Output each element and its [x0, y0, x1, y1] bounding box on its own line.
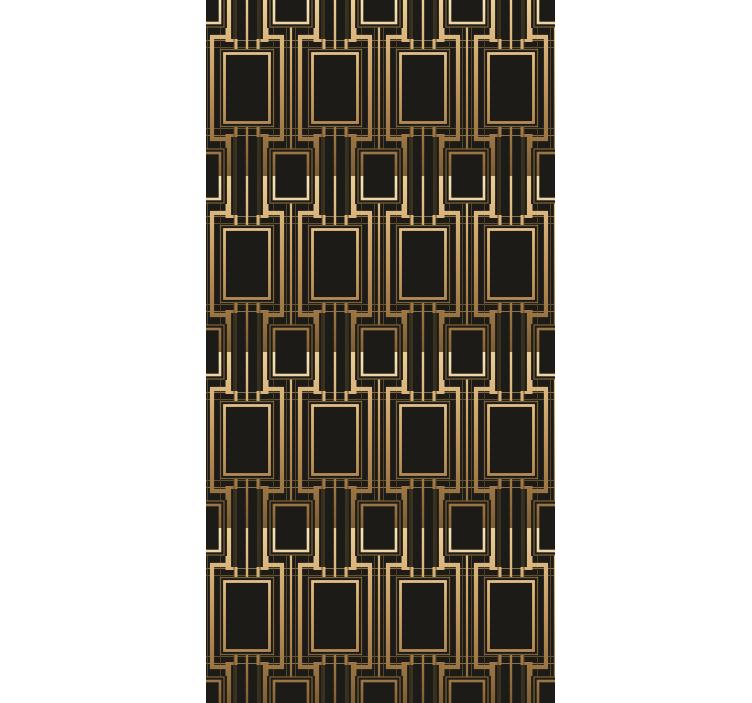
art-deco-wallpaper-panel	[206, 0, 555, 703]
screenshot-canvas	[0, 0, 752, 703]
art-deco-pattern-svg	[206, 0, 555, 703]
art-deco-pattern-svg-host	[206, 0, 555, 703]
